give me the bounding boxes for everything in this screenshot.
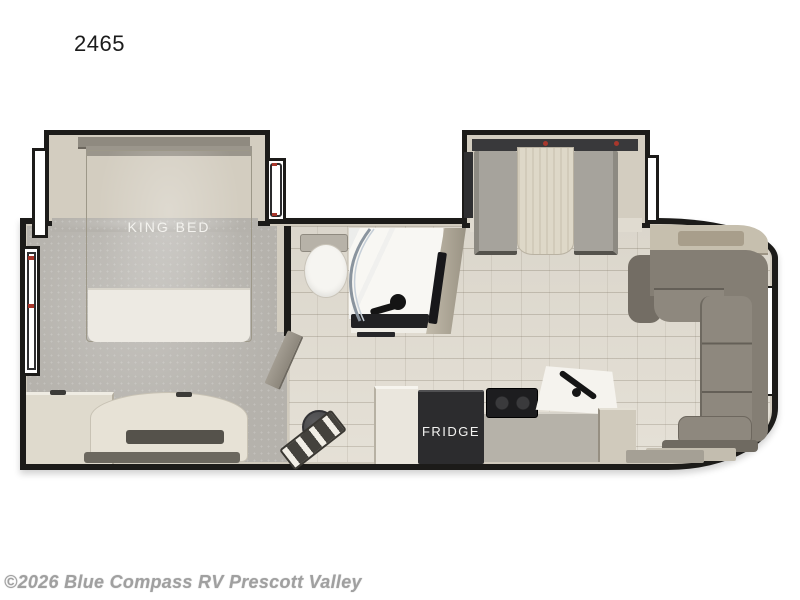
- entry-step-platform: [626, 450, 704, 463]
- floorplan-image: KING BED FRIDGE: [0, 0, 800, 600]
- vanity-drawer: [357, 332, 395, 337]
- toilet-bowl: [304, 244, 348, 298]
- window-latch-mark: [28, 304, 34, 308]
- foot-bench-cushion: [126, 430, 224, 444]
- window-latch-mark: [272, 163, 277, 166]
- vanity-counter: [351, 314, 429, 328]
- bathroom-wall: [284, 226, 291, 336]
- bedroom-left-window: [32, 148, 48, 238]
- dinette-table: [517, 147, 574, 255]
- watermark-text: ©2026 Blue Compass RV Prescott Valley: [4, 572, 362, 593]
- kitchen-counter: [484, 412, 604, 462]
- bed-blanket: [88, 288, 250, 342]
- dinette-bench-left: [474, 151, 517, 255]
- dresser-handle: [50, 390, 66, 395]
- kitchen-cabinet: [374, 386, 418, 464]
- foot-bench-handle: [176, 392, 192, 397]
- king-bed-label: KING BED: [119, 219, 219, 235]
- clearance-light-right: [614, 141, 619, 146]
- dinette-bench-right: [574, 151, 618, 255]
- clearance-light-left: [543, 141, 548, 146]
- fridge: FRIDGE: [418, 390, 484, 464]
- bedroom-right-window-frame: [270, 163, 282, 217]
- fridge-label: FRIDGE: [418, 392, 484, 439]
- dinette-left-window: [464, 152, 473, 218]
- window-latch-mark: [272, 213, 277, 216]
- sink-knob: [572, 388, 581, 397]
- window-latch-mark: [28, 256, 34, 260]
- foot-bench-base: [84, 452, 240, 463]
- rear-counter-tray: [678, 231, 744, 246]
- stove: [486, 388, 538, 418]
- left-wall-window-frame: [27, 252, 36, 370]
- dinette-right-window: [645, 155, 659, 223]
